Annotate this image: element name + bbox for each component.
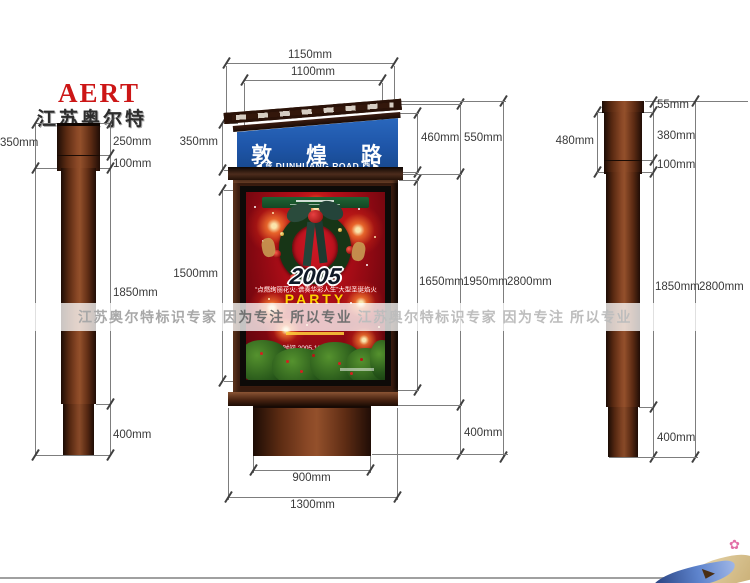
dim-center-foot-width: 1300mm — [228, 499, 397, 511]
dim-center-body-height: 1950mm — [463, 276, 508, 288]
firework-sparkles — [254, 206, 256, 208]
poster-header-banner — [262, 197, 369, 208]
base-cylinder — [253, 406, 371, 456]
left-pole-shaft — [61, 168, 96, 404]
dim-right-upper: 380mm — [657, 130, 695, 142]
wreath-ornament-gold — [280, 232, 284, 236]
watermark-band: 江苏奥尔特标识专家 因为专注 所以专业 江苏奥尔特标识专家 因为专注 所以专业 — [0, 303, 750, 331]
right-pole-base — [608, 407, 638, 457]
dim-center-base-width: 900mm — [253, 472, 370, 484]
dim-right-head: 480mm — [552, 135, 594, 147]
poster: 2005 “点燃绚丽花火·谱奏华彩人生”大型圣诞焰火 PARTY 时间 2005… — [246, 192, 385, 380]
bottom-divider-line — [0, 577, 750, 579]
dim-center-top-width: 1150mm — [226, 49, 394, 61]
wreath-bow-knot — [308, 210, 323, 223]
right-pole-upper — [604, 112, 642, 160]
dim-right-base: 400mm — [657, 432, 695, 444]
dim-left-base: 400mm — [113, 429, 151, 441]
dim-center-box-height: 1650mm — [419, 276, 464, 288]
dim-right-shaft: 1850mm — [655, 281, 700, 293]
dim-left-cap: 250mm — [113, 136, 151, 148]
dim-left-overall-top: 350mm — [0, 137, 33, 149]
dim-center-head-height: 550mm — [464, 132, 502, 144]
watermark-text-left: 江苏奥尔特标识专家 因 — [78, 309, 238, 325]
dim-center-base-height: 400mm — [464, 427, 502, 439]
lightbox-bottom-band — [228, 392, 398, 406]
dim-left-collar: 100mm — [113, 158, 151, 170]
foliage-berries — [260, 352, 263, 355]
poster-subline-yellow — [286, 332, 344, 335]
dim-center-roof-height: 460mm — [421, 132, 459, 144]
flower-icon: ✿ — [729, 537, 740, 553]
watermark-text-emphasis: 为专注 所以专业 — [238, 309, 352, 325]
dim-right-total: 2800mm — [699, 281, 744, 293]
dim-left-shaft: 1850mm — [113, 287, 158, 299]
dimension-drawing-page: AERT 江苏奥尔特 350mm 250mm 100mm 1850mm 400m… — [0, 0, 750, 583]
dim-center-sign-section: 350mm — [160, 136, 218, 148]
dim-center-total-height: 2800mm — [507, 276, 552, 288]
dim-center-box-section: 1500mm — [160, 268, 218, 280]
left-pole-cap — [57, 123, 100, 171]
left-pole-base — [63, 404, 94, 455]
wreath-ornament-gold — [338, 228, 342, 232]
poster-corner-text-mark — [340, 368, 374, 371]
dim-center-sign-width: 1100mm — [244, 66, 382, 78]
watermark-text-right: 江苏奥尔特标识专家 因为专注 所以专业 — [352, 309, 632, 325]
dim-right-cap: 55mm — [657, 99, 689, 111]
wreath-toy-right — [350, 241, 366, 262]
right-pole-shaft — [606, 172, 640, 407]
lightbox-top-ledge — [228, 167, 403, 180]
dim-right-collar: 100mm — [657, 159, 695, 171]
